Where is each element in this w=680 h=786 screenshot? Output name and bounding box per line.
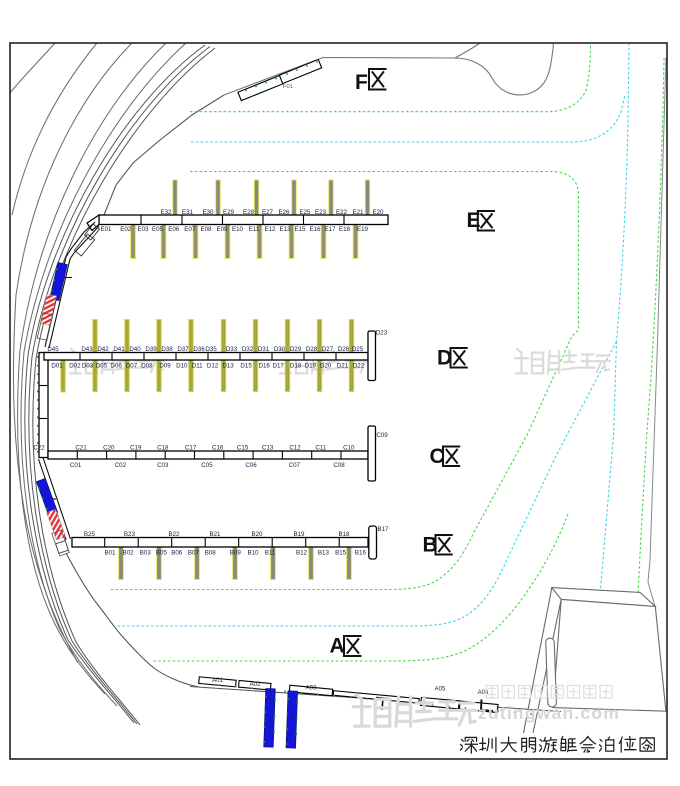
svg-text:E19: E19 xyxy=(357,226,369,233)
svg-text:D13: D13 xyxy=(222,363,234,370)
svg-text:D03: D03 xyxy=(82,363,94,370)
svg-text:E08: E08 xyxy=(200,226,212,233)
svg-text:D05: D05 xyxy=(96,363,108,370)
svg-text:D16: D16 xyxy=(259,363,271,370)
svg-text:D31: D31 xyxy=(258,346,270,353)
svg-text:C08: C08 xyxy=(333,462,345,469)
svg-text:C12: C12 xyxy=(289,445,301,452)
svg-text:D08: D08 xyxy=(141,363,153,370)
svg-text:D09: D09 xyxy=(159,363,171,370)
svg-text:A: A xyxy=(330,635,345,658)
svg-text:D10: D10 xyxy=(176,363,188,370)
svg-text:D42: D42 xyxy=(97,346,109,353)
svg-text:E27: E27 xyxy=(262,209,274,216)
svg-text:C02: C02 xyxy=(115,462,127,469)
svg-text:E13: E13 xyxy=(279,226,291,233)
svg-text:E11: E11 xyxy=(249,226,260,233)
svg-text:D38: D38 xyxy=(161,346,173,353)
svg-text:E16: E16 xyxy=(309,226,321,233)
svg-text:E28: E28 xyxy=(243,209,255,216)
svg-text:B08: B08 xyxy=(205,550,217,557)
svg-text:E26: E26 xyxy=(278,209,290,216)
svg-text:C06: C06 xyxy=(245,462,257,469)
svg-text:zutingwan.com: zutingwan.com xyxy=(478,703,620,723)
svg-text:E21: E21 xyxy=(352,209,364,216)
svg-text:E22: E22 xyxy=(336,209,348,216)
svg-text:B22: B22 xyxy=(168,531,180,538)
svg-text:B15: B15 xyxy=(335,550,347,557)
svg-text:E18: E18 xyxy=(339,226,351,233)
svg-text:D06: D06 xyxy=(110,363,122,370)
svg-text:D15: D15 xyxy=(240,363,252,370)
svg-text:B09: B09 xyxy=(230,550,242,557)
svg-text:B25: B25 xyxy=(84,531,96,538)
svg-text:C16: C16 xyxy=(212,445,224,452)
svg-text:E01: E01 xyxy=(100,226,112,233)
svg-text:B20: B20 xyxy=(251,531,263,538)
svg-text:D43: D43 xyxy=(81,346,93,353)
svg-text:D07: D07 xyxy=(126,363,138,370)
svg-text:D11: D11 xyxy=(192,363,203,370)
svg-text:D12: D12 xyxy=(207,363,219,370)
svg-text:D18: D18 xyxy=(290,363,302,370)
svg-text:B16: B16 xyxy=(355,550,367,557)
svg-text:F: F xyxy=(355,71,368,94)
svg-text:B17: B17 xyxy=(377,526,389,533)
svg-text:E32: E32 xyxy=(160,209,172,216)
svg-text:C17: C17 xyxy=(185,445,197,452)
svg-text:D22: D22 xyxy=(353,363,365,370)
svg-text:D35: D35 xyxy=(205,346,217,353)
svg-text:F01: F01 xyxy=(283,84,293,90)
svg-text:E29: E29 xyxy=(223,209,235,216)
svg-text:D36: D36 xyxy=(193,346,205,353)
svg-text:C18: C18 xyxy=(157,445,169,452)
svg-text:D41: D41 xyxy=(113,346,125,353)
svg-text:E06: E06 xyxy=(168,226,180,233)
svg-text:E05: E05 xyxy=(152,226,164,233)
svg-text:D32: D32 xyxy=(242,346,254,353)
svg-text:C03: C03 xyxy=(157,462,169,469)
svg-text:B03: B03 xyxy=(140,550,152,557)
svg-text:E30: E30 xyxy=(202,209,214,216)
svg-text:D01: D01 xyxy=(51,363,63,370)
svg-text:C01: C01 xyxy=(70,462,82,469)
svg-text:E12: E12 xyxy=(264,226,276,233)
svg-text:C10: C10 xyxy=(343,445,355,452)
svg-text:A05: A05 xyxy=(435,687,446,693)
svg-text:D33: D33 xyxy=(226,346,238,353)
svg-text:B23: B23 xyxy=(124,531,136,538)
svg-text:A06: A06 xyxy=(478,690,489,696)
svg-text:B10: B10 xyxy=(247,550,259,557)
svg-text:D29: D29 xyxy=(290,346,302,353)
svg-text:E10: E10 xyxy=(232,226,244,233)
svg-text:D25: D25 xyxy=(352,346,364,353)
svg-text:D37: D37 xyxy=(177,346,189,353)
svg-text:D40: D40 xyxy=(129,346,141,353)
svg-text:C05: C05 xyxy=(201,462,213,469)
svg-text:B01: B01 xyxy=(104,550,116,557)
svg-text:C19: C19 xyxy=(130,445,142,452)
svg-text:E31: E31 xyxy=(182,209,194,216)
svg-text:D02: D02 xyxy=(69,363,81,370)
svg-text:D20: D20 xyxy=(320,363,332,370)
svg-text:B18: B18 xyxy=(338,531,350,538)
svg-text:A02: A02 xyxy=(250,682,261,688)
svg-text:D39: D39 xyxy=(145,346,157,353)
svg-text:D21: D21 xyxy=(337,363,349,370)
svg-text:D26: D26 xyxy=(338,346,350,353)
svg-text:E09: E09 xyxy=(216,226,228,233)
svg-text:A03: A03 xyxy=(306,686,317,692)
svg-text:A01: A01 xyxy=(212,678,223,684)
svg-text:B12: B12 xyxy=(296,550,308,557)
svg-text:E03: E03 xyxy=(137,226,149,233)
svg-text:E15: E15 xyxy=(294,226,306,233)
svg-text:B05: B05 xyxy=(156,550,168,557)
svg-text:C09: C09 xyxy=(376,432,388,439)
svg-text:C15: C15 xyxy=(237,445,249,452)
svg-text:C07: C07 xyxy=(289,462,301,469)
svg-text:B21: B21 xyxy=(209,531,221,538)
svg-text:C21: C21 xyxy=(75,445,87,452)
svg-text:D28: D28 xyxy=(306,346,318,353)
svg-text:E23: E23 xyxy=(315,209,327,216)
svg-text:D30: D30 xyxy=(274,346,286,353)
svg-text:D27: D27 xyxy=(322,346,334,353)
svg-text:B11: B11 xyxy=(265,550,276,557)
svg-text:E07: E07 xyxy=(184,226,196,233)
svg-text:E25: E25 xyxy=(299,209,311,216)
svg-text:C20: C20 xyxy=(103,445,115,452)
svg-text:B19: B19 xyxy=(293,531,305,538)
svg-text:C22: C22 xyxy=(33,445,45,452)
svg-text:D17: D17 xyxy=(273,363,285,370)
svg-text:E02: E02 xyxy=(120,226,132,233)
svg-text:B02: B02 xyxy=(122,550,134,557)
svg-text:D19: D19 xyxy=(305,363,317,370)
svg-text:D23: D23 xyxy=(376,330,388,337)
svg-text:B07: B07 xyxy=(188,550,200,557)
svg-text:E20: E20 xyxy=(372,209,384,216)
svg-text:C11: C11 xyxy=(315,445,326,452)
svg-text:B13: B13 xyxy=(318,550,330,557)
svg-text:E17: E17 xyxy=(324,226,336,233)
svg-text:C13: C13 xyxy=(262,445,274,452)
svg-text:B06: B06 xyxy=(171,550,183,557)
svg-text:D45: D45 xyxy=(47,346,59,353)
